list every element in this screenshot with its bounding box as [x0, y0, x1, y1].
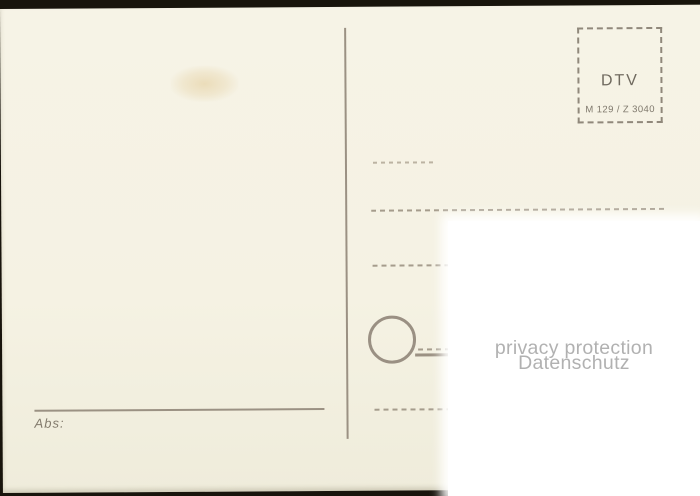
address-line-4-dashed — [418, 348, 450, 350]
address-line-3 — [373, 264, 450, 266]
divider-line — [344, 28, 349, 439]
privacy-overlay: privacy protection Datenschutz — [448, 221, 700, 496]
paper-stain — [170, 66, 238, 102]
address-line-2 — [371, 208, 667, 212]
address-line-5 — [374, 408, 452, 410]
privacy-watermark: privacy protection Datenschutz — [448, 341, 700, 371]
stamp-catalog-number: M 129 / Z 3040 — [580, 104, 661, 115]
scan-backdrop: DTV M 129 / Z 3040 Abs: privacy protecti… — [0, 0, 700, 496]
stamp-publisher-code: DTV — [579, 72, 660, 90]
postmark-circle — [368, 315, 416, 363]
address-line-1 — [373, 161, 436, 163]
stamp-box: DTV M 129 / Z 3040 — [577, 27, 663, 124]
privacy-watermark-line2: Datenschutz — [448, 356, 700, 371]
sender-label: Abs: — [34, 416, 64, 431]
sender-line — [34, 408, 324, 412]
